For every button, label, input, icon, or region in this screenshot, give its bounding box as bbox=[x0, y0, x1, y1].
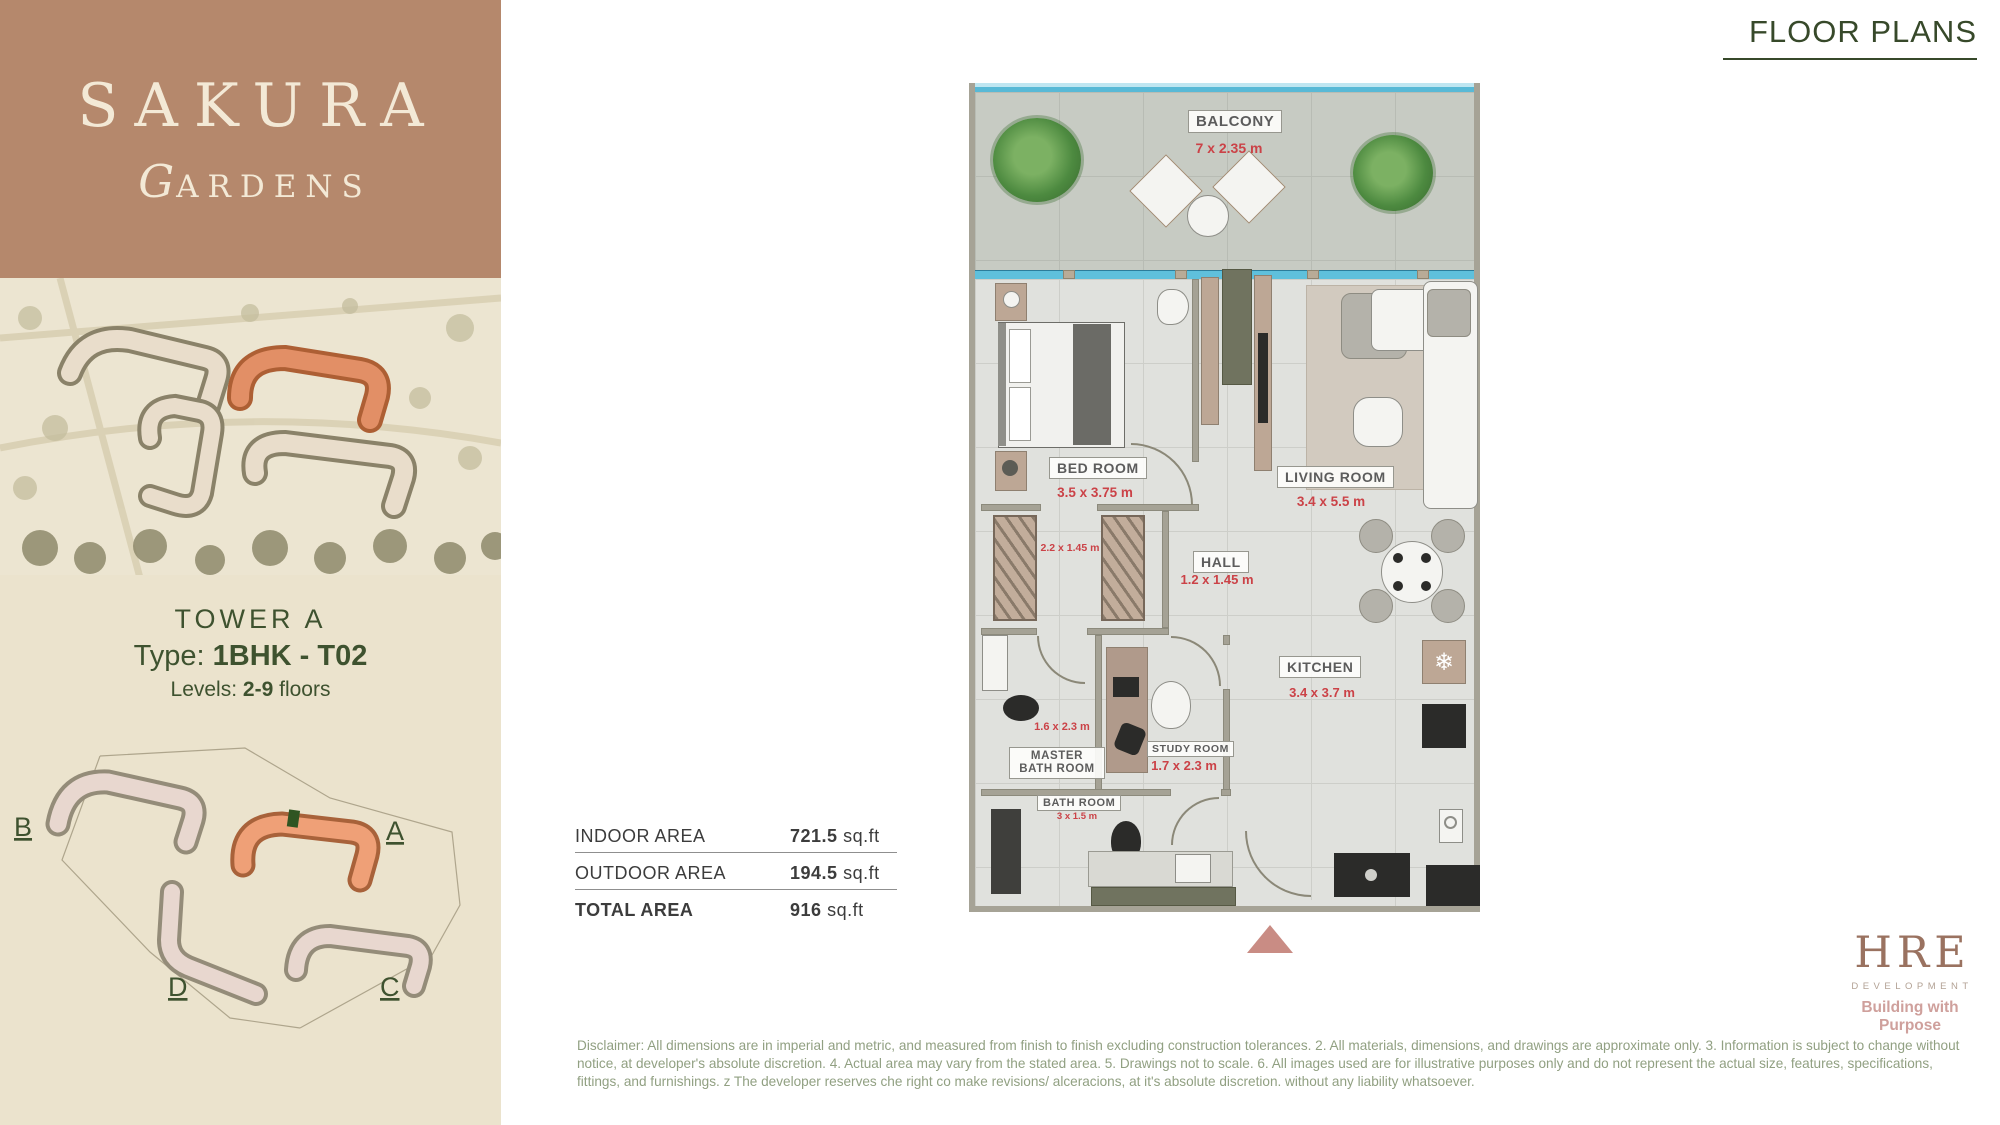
tower-label: TOWER bbox=[174, 604, 294, 634]
snowflake-icon: ❄ bbox=[1434, 648, 1454, 677]
sink bbox=[1175, 854, 1211, 883]
outdoor-area-label: OUTDOOR AREA bbox=[575, 863, 726, 884]
pillow bbox=[1009, 329, 1031, 383]
indoor-area-value: 721.5 sq.ft bbox=[790, 826, 880, 847]
place-setting bbox=[1421, 553, 1431, 563]
table-divider bbox=[575, 889, 897, 890]
levels-line: Levels: 2-9 floors bbox=[0, 678, 501, 702]
floor-plan-brochure-page: SAKURA GARDENS bbox=[0, 0, 2000, 1125]
window-mullion bbox=[1307, 270, 1319, 279]
wardrobe bbox=[1101, 515, 1145, 621]
lamp bbox=[1003, 291, 1020, 308]
brand-name-primary: SAKURA bbox=[61, 71, 439, 141]
site-label-b: B bbox=[14, 812, 32, 842]
vanity-counter bbox=[1088, 851, 1233, 887]
bath-room-dims: 3 x 1.5 m bbox=[1047, 811, 1107, 822]
table-row: TOTAL AREA 916 sq.ft bbox=[575, 894, 897, 923]
levels-suffix: floors bbox=[279, 678, 330, 701]
area-table: INDOOR AREA 721.5 sq.ft OUTDOOR AREA 194… bbox=[575, 820, 897, 923]
wall bbox=[1097, 504, 1199, 511]
study-room-label: STUDY ROOM bbox=[1147, 741, 1234, 757]
total-area-label: TOTAL AREA bbox=[575, 900, 693, 921]
kitchen-counter-corner bbox=[1426, 865, 1480, 906]
desk bbox=[1106, 647, 1148, 773]
unit-marker bbox=[287, 809, 300, 827]
logo-subtitle: DEVELOPMENT bbox=[1840, 981, 1980, 992]
fridge: ❄ bbox=[1422, 640, 1466, 684]
wall bbox=[1192, 279, 1199, 462]
disclaimer-text: Disclaimer: All dimensions are in imperi… bbox=[577, 1037, 1969, 1091]
tv-unit bbox=[1201, 277, 1219, 425]
bedroom-dims: 3.5 x 3.75 m bbox=[1043, 485, 1147, 500]
pillow bbox=[1009, 387, 1031, 441]
wardrobe bbox=[993, 515, 1037, 621]
dining-chair bbox=[1359, 519, 1393, 553]
place-setting bbox=[1421, 581, 1431, 591]
washer-door-icon bbox=[1444, 816, 1457, 829]
tower-info: TOWER A Type: 1BHK - T02 Levels: 2-9 flo… bbox=[0, 604, 501, 702]
site-label-d: D bbox=[168, 972, 188, 1002]
wall bbox=[1087, 628, 1169, 635]
cooktop bbox=[1422, 704, 1466, 748]
levels-value: 2-9 bbox=[243, 678, 273, 701]
master-bath-dims: 1.6 x 2.3 m bbox=[1027, 721, 1097, 733]
type-value: 1BHK - T02 bbox=[213, 640, 368, 672]
headboard bbox=[998, 323, 1006, 446]
brand-name-secondary: GARDENS bbox=[129, 155, 371, 208]
window-mullion bbox=[1175, 270, 1187, 279]
shower-dark bbox=[991, 809, 1021, 894]
window-mullion bbox=[1063, 270, 1075, 279]
wall bbox=[981, 628, 1037, 635]
kitchen-label: KITCHEN bbox=[1279, 656, 1361, 678]
wall bbox=[981, 504, 1041, 511]
page-title-underline bbox=[1723, 58, 1977, 60]
bathroom-sink bbox=[982, 635, 1008, 691]
dining-table bbox=[1381, 541, 1443, 603]
tower-value: A bbox=[305, 604, 327, 634]
type-label: Type: bbox=[134, 640, 205, 672]
living-room-dims: 3.4 x 5.5 m bbox=[1283, 494, 1379, 509]
shower-slab bbox=[1091, 887, 1236, 906]
plant-right bbox=[1353, 135, 1433, 211]
armchair bbox=[1151, 681, 1191, 729]
hall-dims: 1.2 x 1.45 m bbox=[1171, 572, 1263, 587]
study-room-dims: 1.7 x 2.3 m bbox=[1147, 758, 1221, 773]
total-area-value: 916 sq.ft bbox=[790, 900, 864, 921]
bedroom-label: BED ROOM bbox=[1049, 457, 1147, 479]
wall bbox=[1221, 789, 1231, 796]
dining-chair bbox=[1431, 589, 1465, 623]
dining-chair bbox=[1431, 519, 1465, 553]
wall bbox=[1223, 635, 1230, 645]
dining-chair bbox=[1359, 589, 1393, 623]
place-setting bbox=[1393, 553, 1403, 563]
laptop bbox=[1113, 677, 1139, 697]
place-setting bbox=[1393, 581, 1403, 591]
balcony-dims: 7 x 2.35 m bbox=[1183, 140, 1275, 156]
wall bbox=[1162, 511, 1169, 628]
logo-name: HRE bbox=[1840, 928, 1980, 978]
decor-plant bbox=[1002, 460, 1018, 476]
levels-label: Levels: bbox=[171, 678, 238, 701]
logo-tagline: Building with Purpose bbox=[1840, 999, 1980, 1035]
entrance-opening bbox=[1243, 900, 1313, 906]
bed-runner bbox=[1073, 324, 1111, 445]
toilet bbox=[1003, 695, 1039, 721]
bed bbox=[998, 322, 1125, 448]
tower-line: TOWER A bbox=[0, 604, 501, 635]
site-label-c: C bbox=[380, 972, 400, 1002]
table-row: OUTDOOR AREA 194.5 sq.ft bbox=[575, 857, 897, 886]
hall-label: HALL bbox=[1193, 551, 1249, 573]
plant-left bbox=[993, 118, 1081, 202]
kitchen-sink bbox=[1365, 869, 1377, 881]
type-line: Type: 1BHK - T02 bbox=[0, 640, 501, 673]
entrance-marker-icon bbox=[1247, 925, 1293, 953]
coffee-table bbox=[1353, 397, 1403, 447]
window-mullion bbox=[1417, 270, 1429, 279]
floor-plan: ❄ BALCONY 7 x 2.35 m BED ROOM 3.5 x 3.75… bbox=[969, 83, 1480, 912]
bath-room-label: BATH ROOM bbox=[1037, 795, 1121, 811]
page-title: FLOOR PLANS bbox=[1663, 14, 1977, 50]
site-label-a: A bbox=[386, 816, 404, 846]
tv-screen bbox=[1258, 333, 1268, 423]
wardrobe-dims: 2.2 x 1.45 m bbox=[1035, 542, 1105, 554]
sofa-throw bbox=[1427, 289, 1471, 337]
aerial-rendering-image bbox=[0, 278, 501, 578]
table-row: INDOOR AREA 721.5 sq.ft bbox=[575, 820, 897, 849]
brand-header: SAKURA GARDENS bbox=[0, 0, 501, 278]
kitchen-dims: 3.4 x 3.7 m bbox=[1283, 685, 1361, 700]
balcony-table bbox=[1187, 195, 1229, 237]
site-key-plan: B A D C bbox=[0, 740, 470, 1030]
living-room-label: LIVING ROOM bbox=[1277, 466, 1394, 488]
table-divider bbox=[575, 852, 897, 853]
partition-wall bbox=[1222, 269, 1252, 385]
indoor-area-label: INDOOR AREA bbox=[575, 826, 706, 847]
balcony-label: BALCONY bbox=[1188, 110, 1282, 133]
master-bath-label: MASTER BATH ROOM bbox=[1009, 747, 1105, 779]
developer-logo: HRE DEVELOPMENT Building with Purpose bbox=[1840, 928, 1980, 1035]
outdoor-area-value: 194.5 sq.ft bbox=[790, 863, 880, 884]
